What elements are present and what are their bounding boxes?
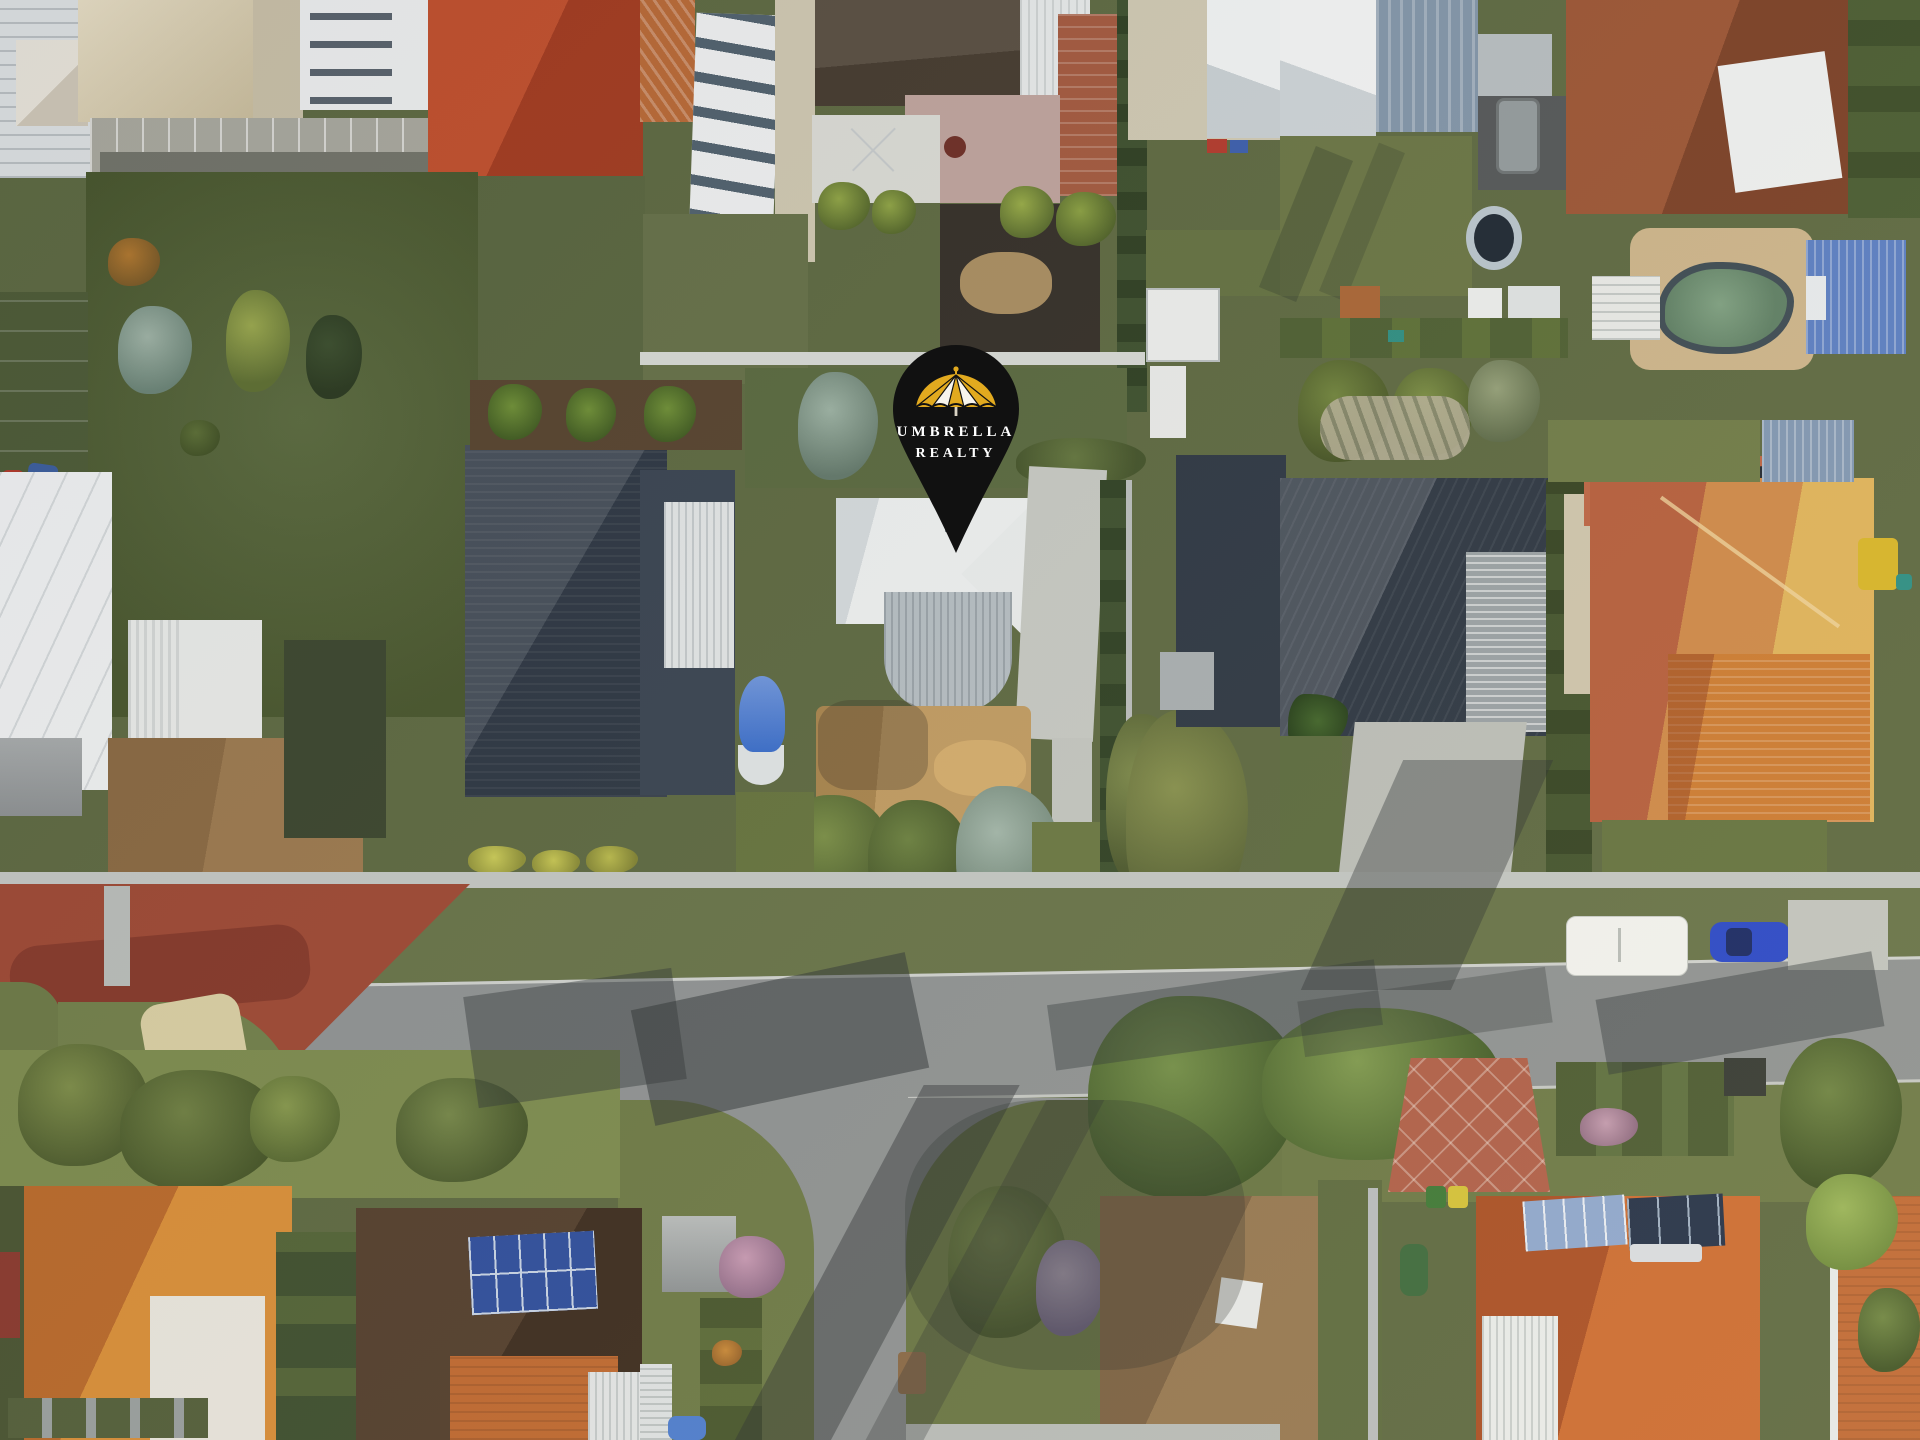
pin-brand-line2: REALTY bbox=[891, 447, 1021, 461]
location-pin-marker[interactable]: UMBRELLA REALTY bbox=[891, 343, 1021, 555]
house-B-white-roof-corner bbox=[588, 1372, 642, 1440]
tan-roof-house-E bbox=[1100, 1196, 1324, 1440]
yellow-playset bbox=[1858, 538, 1898, 590]
footpath-vertical-stub bbox=[104, 886, 130, 986]
hot-tub bbox=[1496, 98, 1540, 174]
house-B-solar-array bbox=[468, 1231, 598, 1315]
boat-blue-cover bbox=[739, 676, 785, 752]
drive-flare-right bbox=[1788, 900, 1888, 970]
lawn-beside-drive bbox=[1280, 736, 1342, 888]
bottom-footpath bbox=[906, 1424, 1280, 1440]
blue-shed-gable bbox=[1806, 276, 1826, 320]
teal-garden-item bbox=[1388, 330, 1404, 342]
grey-gable-left bbox=[0, 738, 82, 816]
corner-shrub-column bbox=[700, 1298, 762, 1440]
dark-garden-plot bbox=[284, 640, 386, 838]
garden-between-AB bbox=[276, 1232, 364, 1440]
brick-paving bbox=[1058, 14, 1118, 196]
caravan bbox=[1566, 916, 1688, 976]
bin-blue bbox=[1230, 140, 1248, 153]
C2-solar-light-array bbox=[1522, 1195, 1627, 1252]
C2-solar-collectors bbox=[1630, 1244, 1702, 1262]
grey-annex bbox=[1160, 652, 1214, 710]
aerial-photo: UMBRELLA REALTY bbox=[0, 0, 1920, 1440]
yellow-bush-1 bbox=[468, 846, 526, 874]
teal-toy bbox=[1896, 574, 1912, 590]
bin-red bbox=[1207, 139, 1227, 153]
subject-driveway bbox=[1015, 466, 1107, 742]
white-pergola bbox=[1592, 276, 1660, 340]
C2-white-garage-roof bbox=[1482, 1316, 1558, 1440]
silver-gable-roof-tr bbox=[1280, 0, 1376, 138]
white-shed-small-1 bbox=[1146, 288, 1220, 362]
yellow-bush-3 bbox=[586, 846, 638, 874]
window-stripes bbox=[310, 6, 392, 104]
red-gravel-driveway bbox=[1388, 1058, 1550, 1192]
blue-car-windshield bbox=[1726, 928, 1752, 956]
orange-garage-roof bbox=[1668, 654, 1870, 822]
left-side-garden bbox=[0, 292, 88, 482]
house-E-skylight bbox=[1215, 1277, 1263, 1328]
hedge-ball-2 bbox=[872, 190, 916, 234]
bluegrey-building bbox=[1376, 0, 1478, 132]
backyard-sand-patch bbox=[960, 252, 1052, 314]
house-A-patio-clutter bbox=[8, 1398, 208, 1438]
C2-solar-dark-array bbox=[1627, 1194, 1726, 1251]
patio-planter bbox=[944, 136, 966, 158]
wheelie-bin-green bbox=[1426, 1186, 1446, 1208]
caravan-door-line bbox=[1618, 928, 1621, 962]
br-garden-bed bbox=[1556, 1062, 1734, 1156]
orange-tile-wall bbox=[640, 0, 695, 122]
wheelie-bin-yellow bbox=[1448, 1186, 1468, 1208]
blue-roof-shed-2 bbox=[1762, 420, 1854, 482]
tr-lawn bbox=[1280, 136, 1472, 296]
white-roof-wedge bbox=[1718, 51, 1843, 193]
silver-gable-top bbox=[1207, 0, 1280, 138]
red-wall-fragment bbox=[0, 1252, 20, 1338]
tr-lawn-lower bbox=[1548, 420, 1760, 482]
blue-tarp-pool bbox=[668, 1416, 706, 1440]
br-grey-fence bbox=[1368, 1188, 1378, 1440]
white-roof-wing bbox=[664, 502, 734, 668]
terrace-gap-fill bbox=[253, 0, 303, 122]
trampoline bbox=[1466, 206, 1522, 270]
garden-bench bbox=[898, 1352, 926, 1394]
pin-brand-line1: UMBRELLA bbox=[891, 425, 1021, 440]
garden-band-tree-3 bbox=[1468, 360, 1540, 442]
flower-garden-strip bbox=[1280, 318, 1568, 358]
blue-striped-building bbox=[689, 13, 780, 222]
stone-path bbox=[1320, 396, 1470, 460]
lawn-top-right-small bbox=[1146, 230, 1280, 296]
cream-building-roof bbox=[78, 0, 253, 122]
right-green-column bbox=[1848, 0, 1920, 218]
brown-roof-house-top bbox=[815, 0, 1020, 106]
hedge-ball-4 bbox=[1056, 192, 1116, 246]
subject-veranda-roof bbox=[884, 592, 1012, 714]
white-shed-small-2 bbox=[1150, 366, 1186, 438]
rainwater-tank bbox=[1400, 1244, 1428, 1296]
dark-garden-shed bbox=[1724, 1058, 1766, 1096]
hedge-ball-1 bbox=[818, 182, 870, 230]
grey-garage-roof bbox=[1466, 552, 1550, 732]
navy-roof-house-1 bbox=[465, 445, 667, 797]
